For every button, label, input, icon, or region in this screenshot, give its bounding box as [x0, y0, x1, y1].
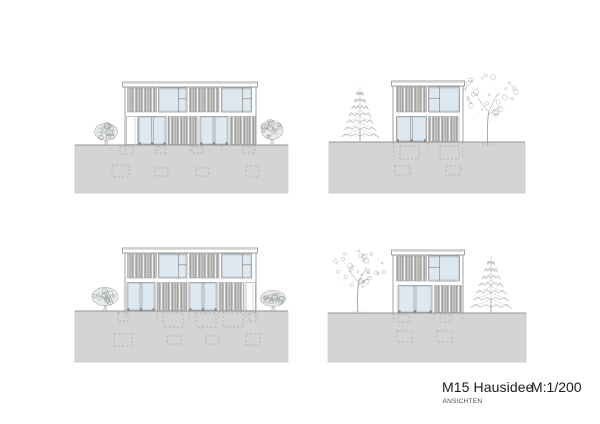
ground-top-left	[75, 145, 288, 193]
ground-top-right	[329, 142, 525, 193]
building-top-left	[123, 82, 258, 145]
bush-tree	[95, 122, 118, 145]
building-bottom-right	[392, 250, 465, 313]
building-bottom-left	[123, 248, 258, 311]
ground-bottom-right	[328, 313, 526, 362]
building-top-right	[392, 81, 465, 142]
elevation-top-right	[329, 74, 525, 193]
elevations-drawing	[0, 0, 600, 424]
bush-tree	[92, 287, 118, 311]
elevation-bottom-left	[75, 248, 288, 362]
deciduous-tree	[334, 250, 386, 313]
bush-tree	[261, 290, 286, 311]
deciduous-tree	[462, 74, 518, 146]
drawing-sheet: M15 Hausidee M:1/200 ANSICHTEN	[0, 0, 600, 424]
conifer-tree	[470, 256, 512, 313]
elevation-top-left	[75, 82, 288, 193]
elevation-bottom-right	[328, 250, 526, 362]
conifer-tree	[341, 87, 379, 142]
ground-bottom-left	[75, 311, 288, 362]
bush-tree	[261, 119, 283, 145]
